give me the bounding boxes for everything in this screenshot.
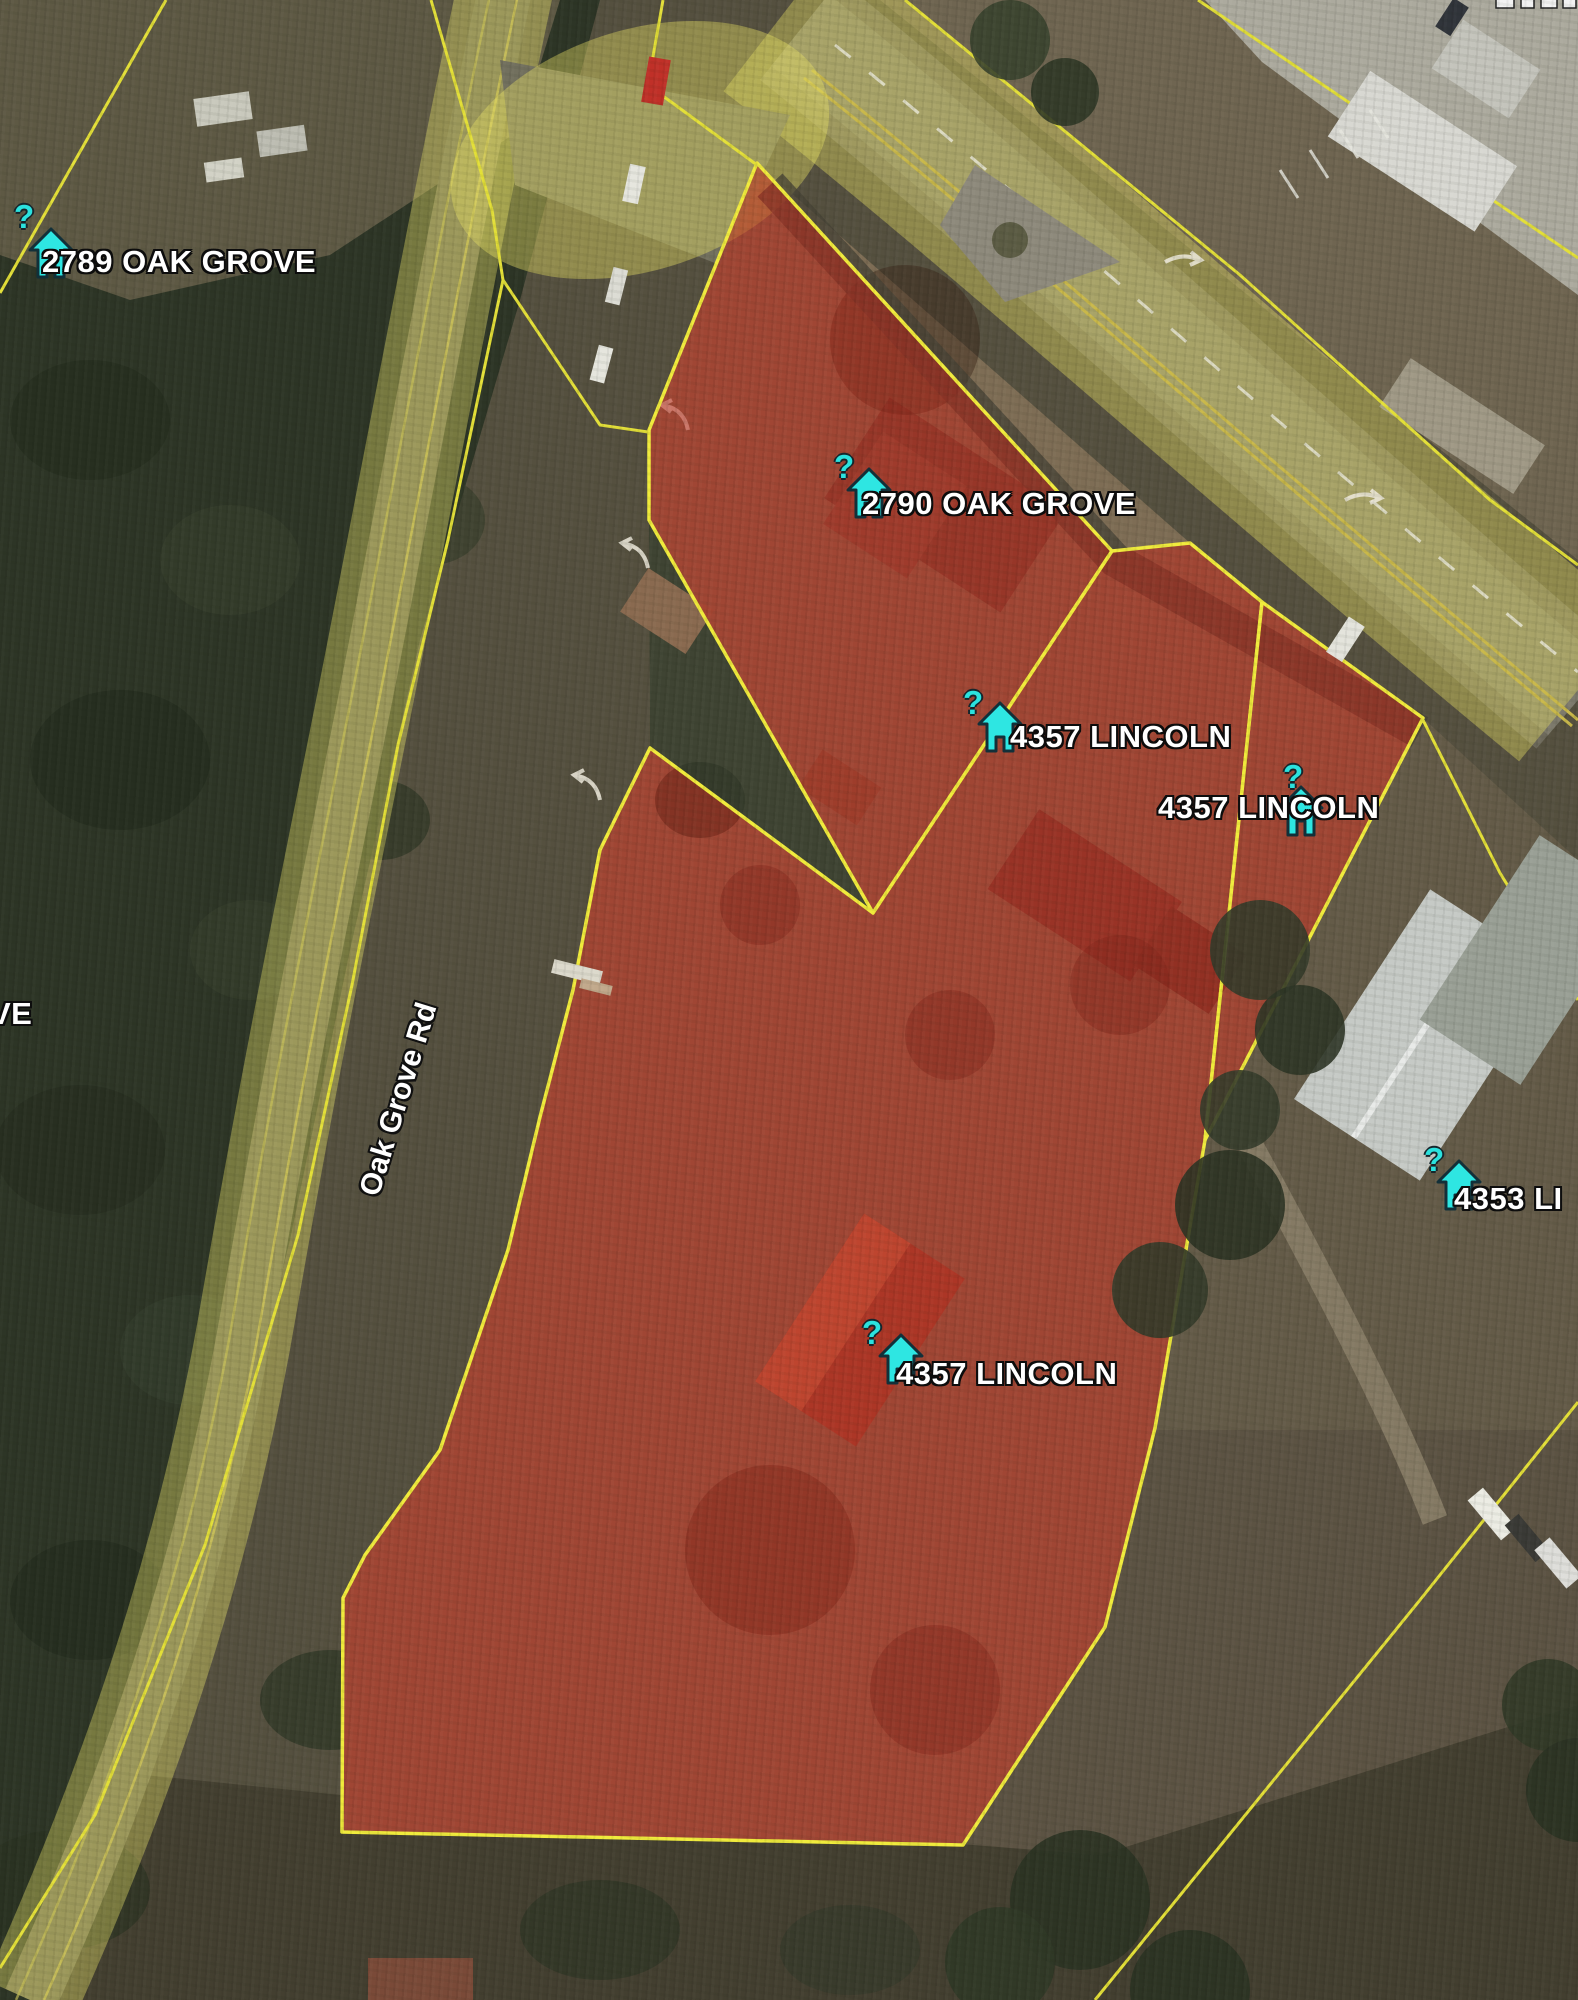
address-label: 2789 OAK GROVE xyxy=(42,244,316,280)
gis-map-canvas[interactable]: ? 2789 OAK GROVE ? 2790 OAK GROVE ? 4357… xyxy=(0,0,1578,2000)
address-label: 2790 OAK GROVE xyxy=(862,486,1136,522)
address-label-fragment: VE xyxy=(0,996,32,1032)
address-label: 4353 LI xyxy=(1454,1181,1563,1217)
satellite-terrain xyxy=(0,0,1578,2000)
address-label: 4357 LINCOLN xyxy=(1010,719,1231,755)
address-label: 4357 LINCOLN xyxy=(896,1356,1117,1392)
address-label: 4357 LINCOLN xyxy=(1158,790,1379,826)
